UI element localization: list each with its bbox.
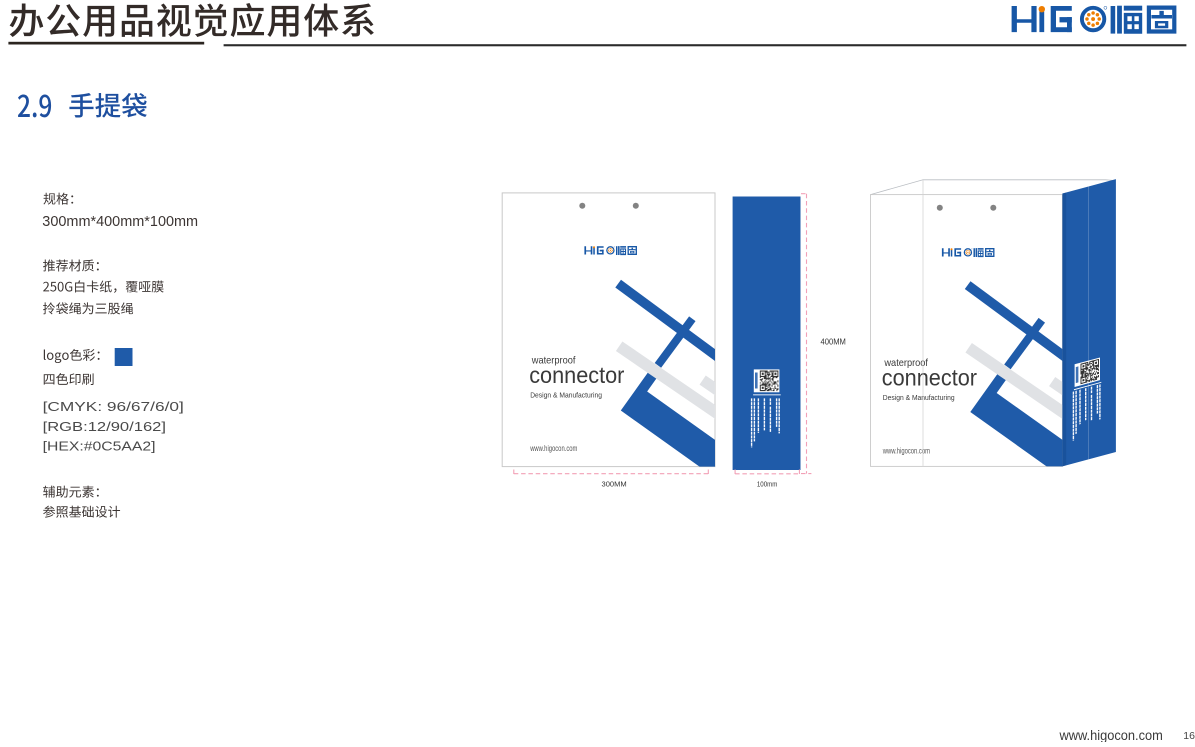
svg-text:[CMYK: 96/67/6/0]: [CMYK: 96/67/6/0] xyxy=(43,399,184,414)
svg-text:16: 16 xyxy=(1183,730,1195,742)
svg-text:300MM: 300MM xyxy=(602,482,627,489)
svg-text:300mm*400mm*100mm: 300mm*400mm*100mm xyxy=(42,213,198,230)
svg-text:www.higocon.com: www.higocon.com xyxy=(1059,728,1163,742)
svg-text:[RGB:12/90/162]: [RGB:12/90/162] xyxy=(43,419,166,434)
svg-text:400MM: 400MM xyxy=(821,337,847,346)
svg-text:[HEX:#0C5AA2]: [HEX:#0C5AA2] xyxy=(43,439,156,454)
svg-text:100mm: 100mm xyxy=(757,482,778,489)
